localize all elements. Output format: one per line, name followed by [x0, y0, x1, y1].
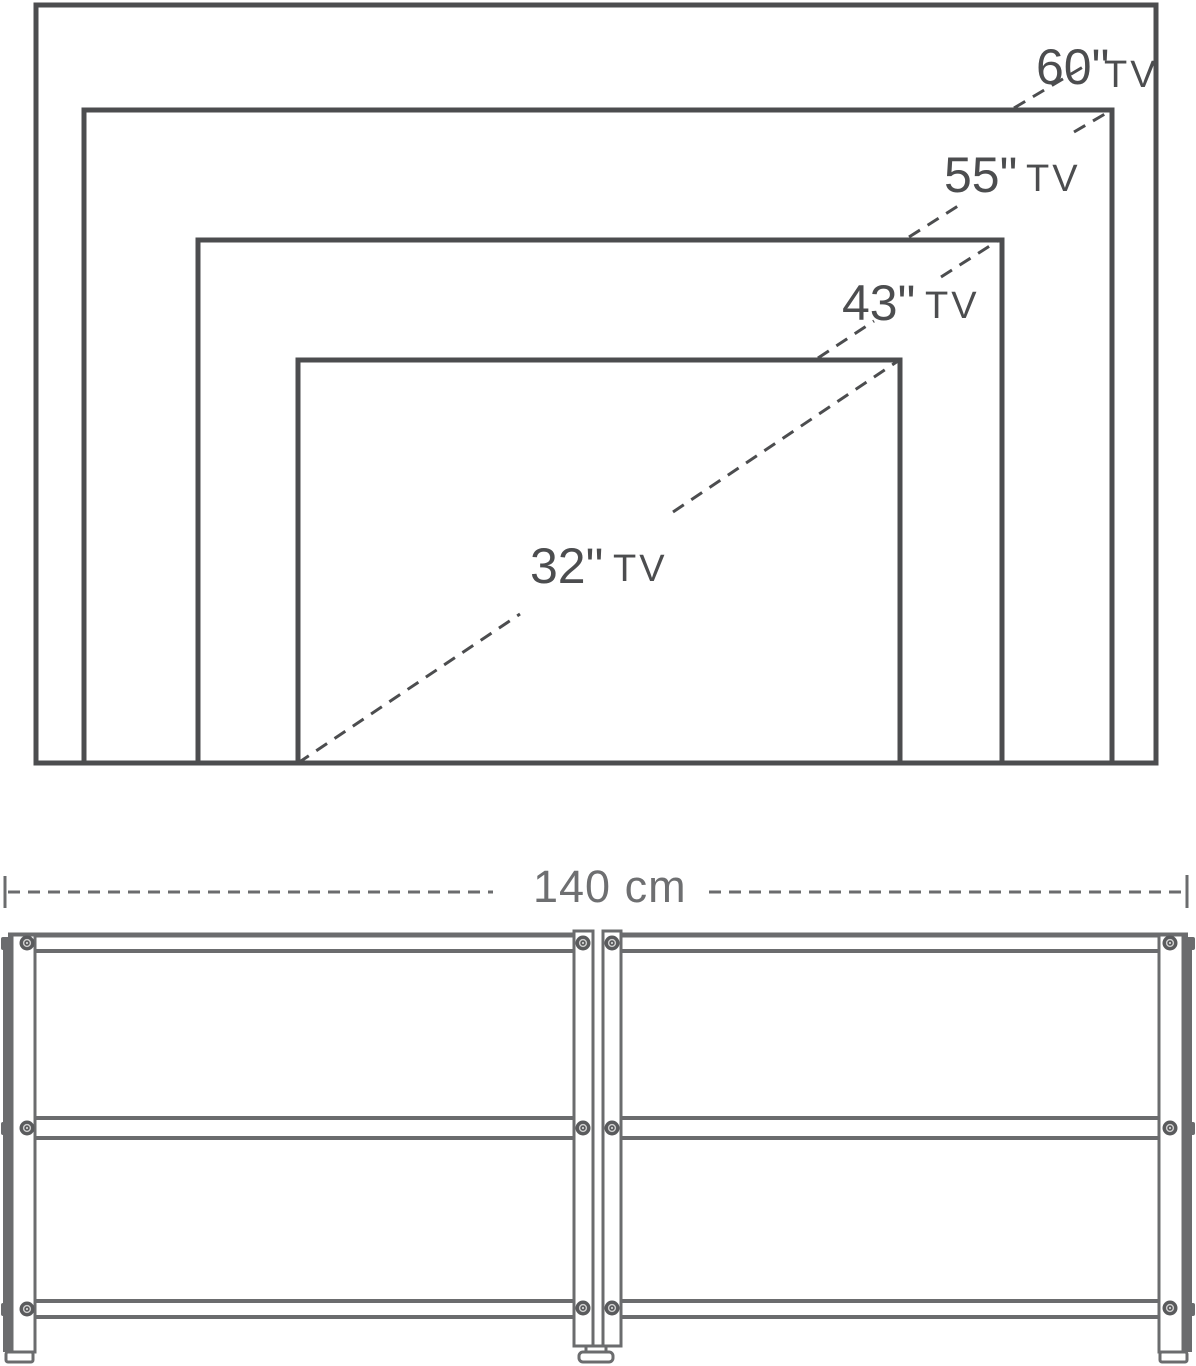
stand-left-leg [1, 935, 35, 1362]
screw-icon [1163, 936, 1178, 951]
screw-icon [20, 936, 35, 951]
tv-stand-front-view [1, 931, 1195, 1362]
center-post-right [603, 931, 621, 1346]
left-foot [6, 1352, 33, 1362]
tv-size-unit-32: TV [613, 548, 668, 590]
screw-icon [605, 1121, 620, 1136]
tv-size-value-55: 55" [944, 147, 1017, 203]
right-foot [1160, 1352, 1187, 1362]
tv-size-value-32: 32" [530, 538, 603, 594]
tv-size-value-60: 60" [1036, 39, 1109, 95]
screw-icon [576, 1121, 591, 1136]
screw-icon [576, 936, 591, 951]
tv-size-unit-43: TV [925, 285, 980, 327]
screw-icon [605, 1301, 620, 1316]
screw-icon [20, 1121, 35, 1136]
dimension-width-label: 140 cm [533, 861, 687, 912]
screw-icon [1163, 1301, 1178, 1316]
tv-size-comparison [36, 5, 1156, 763]
tv-size-unit-60: TV [1104, 54, 1159, 96]
width-dimension: 140 cm [5, 861, 1187, 912]
center-post-left [574, 931, 593, 1346]
tv-size-value-43: 43" [842, 275, 915, 331]
stand-center-posts [574, 931, 621, 1362]
right-leg-face [1159, 935, 1183, 1352]
screw-icon [20, 1302, 35, 1317]
screw-icon [605, 936, 620, 951]
center-foot-base [579, 1352, 613, 1362]
screw-icon [1163, 1121, 1178, 1136]
stand-right-leg [1159, 935, 1195, 1362]
tv-size-unit-55: TV [1026, 158, 1081, 200]
left-leg-face [12, 935, 35, 1352]
tv-stand-diagram-svg: 60" TV 55" TV 43" TV 32" TV 140 cm [0, 0, 1196, 1366]
product-dimension-image: 60" TV 55" TV 43" TV 32" TV 140 cm [0, 0, 1196, 1366]
right-leg-side-profile [1184, 937, 1192, 1352]
screw-icon [576, 1301, 591, 1316]
